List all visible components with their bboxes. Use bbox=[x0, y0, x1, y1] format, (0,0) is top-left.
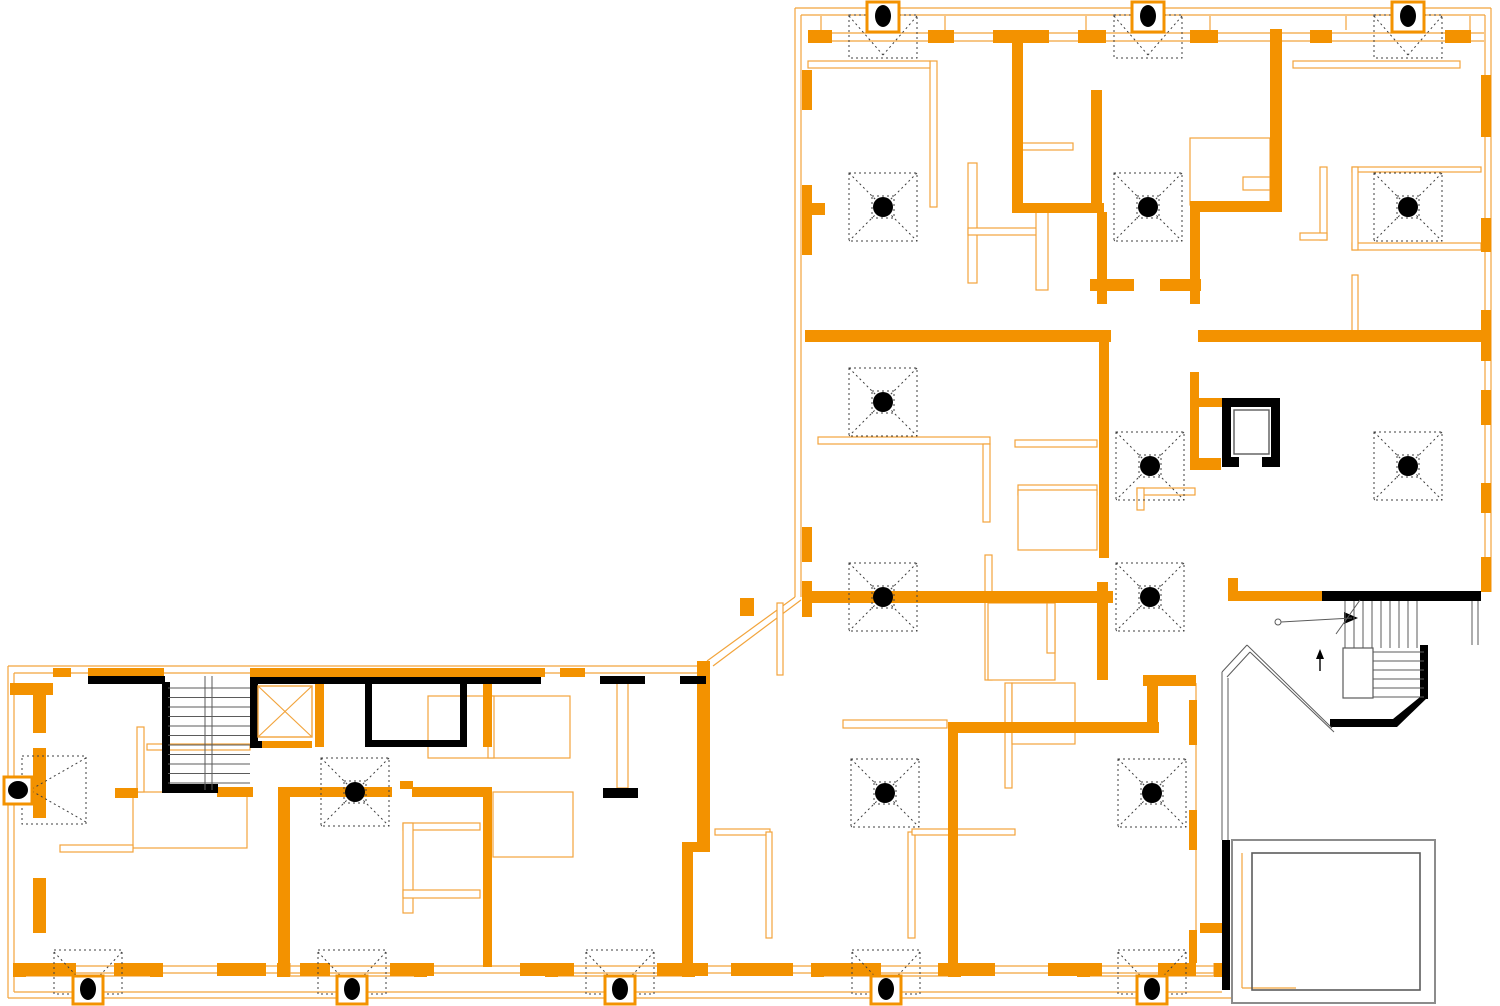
wall-segment bbox=[1190, 201, 1282, 212]
column bbox=[875, 5, 891, 27]
wall-segment bbox=[545, 963, 558, 977]
column bbox=[344, 978, 360, 1000]
partition-wall bbox=[808, 61, 930, 68]
column bbox=[1140, 587, 1160, 607]
core-wall-segment bbox=[365, 681, 372, 747]
wall-segment bbox=[948, 963, 961, 977]
column bbox=[1140, 456, 1160, 476]
core-wall-polygon bbox=[1316, 649, 1324, 659]
wall-segment bbox=[13, 963, 26, 977]
partition-wall bbox=[1005, 683, 1012, 788]
wall-segment bbox=[1481, 310, 1491, 361]
boundary-line bbox=[713, 600, 801, 666]
wall-segment bbox=[802, 527, 812, 562]
partition-wall bbox=[1018, 490, 1097, 550]
partition-wall bbox=[988, 603, 1055, 680]
column bbox=[878, 978, 894, 1000]
core-wall-segment bbox=[162, 784, 218, 793]
floor-plan-canvas bbox=[0, 0, 1500, 1006]
partition-wall bbox=[493, 792, 573, 857]
core-wall-segment bbox=[88, 676, 165, 684]
column bbox=[1140, 5, 1156, 27]
wall-segment bbox=[33, 878, 46, 933]
wall-segment bbox=[150, 963, 163, 977]
core-wall-polygon bbox=[1330, 697, 1428, 727]
partition-wall bbox=[912, 829, 1015, 835]
wall-segment bbox=[802, 70, 812, 110]
wall-segment bbox=[1228, 591, 1323, 601]
railing-line bbox=[1222, 645, 1247, 672]
wall-segment bbox=[20, 963, 76, 976]
wall-segment bbox=[805, 203, 825, 215]
column bbox=[873, 392, 893, 412]
wall-segment bbox=[1198, 330, 1484, 342]
wall-segment bbox=[33, 688, 46, 733]
core-wall-segment bbox=[253, 677, 541, 684]
core-wall-segment bbox=[250, 741, 262, 748]
wall-segment bbox=[808, 30, 832, 43]
wall-segment bbox=[1099, 342, 1109, 558]
column bbox=[1400, 5, 1416, 27]
partition-wall bbox=[1047, 603, 1055, 653]
core-wall-segment bbox=[1222, 840, 1230, 990]
wall-segment bbox=[993, 30, 1049, 43]
column bbox=[1142, 783, 1162, 803]
wall-segment bbox=[400, 781, 413, 789]
wall-segment bbox=[483, 681, 492, 747]
wall-segment bbox=[1048, 963, 1102, 976]
wall-segment bbox=[483, 787, 492, 967]
column bbox=[8, 781, 28, 799]
partition-wall bbox=[403, 823, 413, 913]
wall-segment bbox=[740, 598, 754, 616]
core-wall-segment bbox=[162, 682, 170, 793]
railing-line bbox=[1281, 618, 1352, 622]
wall-segment bbox=[1189, 700, 1197, 745]
wall-segment bbox=[1190, 458, 1221, 470]
wall-segment bbox=[1481, 483, 1491, 513]
wall-segment bbox=[1190, 372, 1199, 470]
wall-segment bbox=[682, 842, 693, 971]
wall-segment bbox=[1190, 30, 1218, 43]
column bbox=[873, 197, 893, 217]
wall-segment bbox=[1200, 923, 1222, 933]
partition-wall bbox=[1015, 440, 1097, 447]
wall-segment bbox=[250, 668, 545, 677]
wall-segment bbox=[802, 581, 812, 617]
wall-segment bbox=[1270, 29, 1282, 211]
wall-segment bbox=[300, 963, 330, 976]
core-wall-segment bbox=[1322, 591, 1481, 601]
wall-segment bbox=[1158, 963, 1196, 976]
partition-wall bbox=[983, 444, 990, 522]
column bbox=[612, 978, 628, 1000]
wall-segment bbox=[1310, 30, 1332, 43]
balcony-outline bbox=[1252, 853, 1420, 990]
wall-segment bbox=[1481, 218, 1491, 252]
core-wall-segment bbox=[603, 788, 638, 798]
wall-segment bbox=[811, 963, 824, 977]
wall-segment bbox=[277, 963, 290, 977]
wall-segment bbox=[1189, 810, 1197, 850]
wall-segment bbox=[88, 668, 164, 677]
wall-segment bbox=[1012, 30, 1023, 212]
wall-segment bbox=[823, 963, 881, 976]
partition-wall bbox=[60, 845, 133, 852]
wall-segment bbox=[217, 963, 266, 976]
partition-wall bbox=[843, 720, 947, 728]
wall-segment bbox=[1190, 398, 1223, 407]
core-wall-segment bbox=[250, 677, 258, 748]
wall-segment bbox=[10, 683, 53, 695]
railing-line bbox=[1227, 652, 1250, 677]
reference-circle-icon bbox=[1275, 619, 1281, 625]
wall-segment bbox=[1190, 212, 1200, 304]
core-wall-segment bbox=[600, 676, 645, 684]
wall-segment bbox=[805, 330, 1111, 342]
partition-wall bbox=[1137, 488, 1195, 495]
wall-segment bbox=[1078, 30, 1106, 43]
partition-wall bbox=[137, 727, 144, 792]
partition-wall bbox=[715, 829, 770, 835]
column bbox=[80, 978, 96, 1000]
wall-segment bbox=[1077, 963, 1090, 977]
partition-wall bbox=[1352, 167, 1481, 172]
partition-wall bbox=[403, 890, 480, 898]
wall-segment bbox=[810, 591, 1113, 603]
stair-landing bbox=[1343, 648, 1373, 698]
balcony-outline bbox=[1232, 840, 1435, 1003]
column bbox=[1138, 197, 1158, 217]
app bbox=[0, 0, 1500, 1006]
stair-landing bbox=[1234, 410, 1269, 454]
core-wall-segment bbox=[1222, 457, 1239, 467]
partition-wall bbox=[968, 163, 977, 283]
partition-wall bbox=[1352, 243, 1481, 250]
partition-wall bbox=[1352, 167, 1358, 250]
core-wall-segment bbox=[1222, 398, 1231, 458]
wall-segment bbox=[115, 788, 138, 798]
wall-segment bbox=[278, 787, 392, 797]
wall-segment bbox=[414, 963, 427, 977]
partition-wall bbox=[428, 696, 570, 758]
wall-segment bbox=[217, 787, 253, 797]
wall-segment bbox=[53, 668, 71, 677]
column bbox=[345, 782, 365, 802]
partition-wall bbox=[1293, 61, 1460, 68]
wall-segment bbox=[1481, 390, 1491, 425]
partition-wall bbox=[818, 437, 990, 444]
wall-segment bbox=[1445, 30, 1471, 43]
railing-line bbox=[1336, 600, 1360, 634]
wall-segment bbox=[33, 748, 46, 818]
core-wall-segment bbox=[1271, 398, 1280, 458]
wall-segment bbox=[1481, 557, 1491, 592]
wall-segment bbox=[278, 792, 290, 966]
wall-segment bbox=[682, 963, 695, 977]
wall-segment bbox=[262, 741, 312, 748]
wall-segment bbox=[1012, 203, 1104, 213]
partition-wall bbox=[1137, 488, 1144, 510]
partition-wall bbox=[908, 832, 915, 938]
column bbox=[875, 783, 895, 803]
column bbox=[873, 587, 893, 607]
partition-wall bbox=[1190, 138, 1270, 205]
wall-segment bbox=[412, 787, 489, 797]
wall-segment bbox=[697, 661, 710, 851]
partition-wall bbox=[930, 61, 937, 207]
railing-line bbox=[1250, 652, 1334, 732]
core-wall-segment bbox=[365, 740, 467, 747]
wall-segment bbox=[731, 963, 793, 976]
column bbox=[1398, 197, 1418, 217]
core-wall-segment bbox=[1262, 457, 1280, 467]
partition-wall bbox=[968, 228, 1037, 235]
partition-wall bbox=[133, 792, 247, 848]
column bbox=[1144, 978, 1160, 1000]
wall-segment bbox=[928, 30, 954, 43]
core-wall-segment bbox=[460, 681, 467, 747]
wall-segment bbox=[1090, 279, 1134, 291]
wall-segment bbox=[1091, 90, 1102, 205]
partition-wall bbox=[777, 603, 783, 675]
wall-segment bbox=[938, 963, 995, 976]
wall-segment bbox=[1481, 75, 1491, 137]
partition-wall bbox=[1352, 275, 1358, 333]
column bbox=[1398, 456, 1418, 476]
wall-segment bbox=[802, 185, 812, 255]
partition-wall bbox=[1300, 233, 1327, 240]
wall-segment bbox=[560, 668, 585, 677]
core-wall-segment bbox=[680, 676, 706, 684]
core-wall-segment bbox=[1420, 645, 1428, 699]
wall-segment bbox=[390, 963, 434, 976]
partition-wall bbox=[403, 823, 480, 830]
partition-wall bbox=[1320, 167, 1327, 240]
wall-segment bbox=[315, 681, 324, 747]
partition-wall bbox=[617, 683, 628, 788]
partition-wall bbox=[1036, 210, 1048, 290]
partition-wall bbox=[1012, 683, 1075, 744]
partition-wall bbox=[1243, 177, 1270, 190]
wall-segment bbox=[948, 733, 958, 970]
wall-segment bbox=[948, 722, 1159, 733]
partition-wall bbox=[766, 832, 772, 938]
partition-wall bbox=[1017, 143, 1073, 150]
wall-segment bbox=[1189, 930, 1197, 963]
